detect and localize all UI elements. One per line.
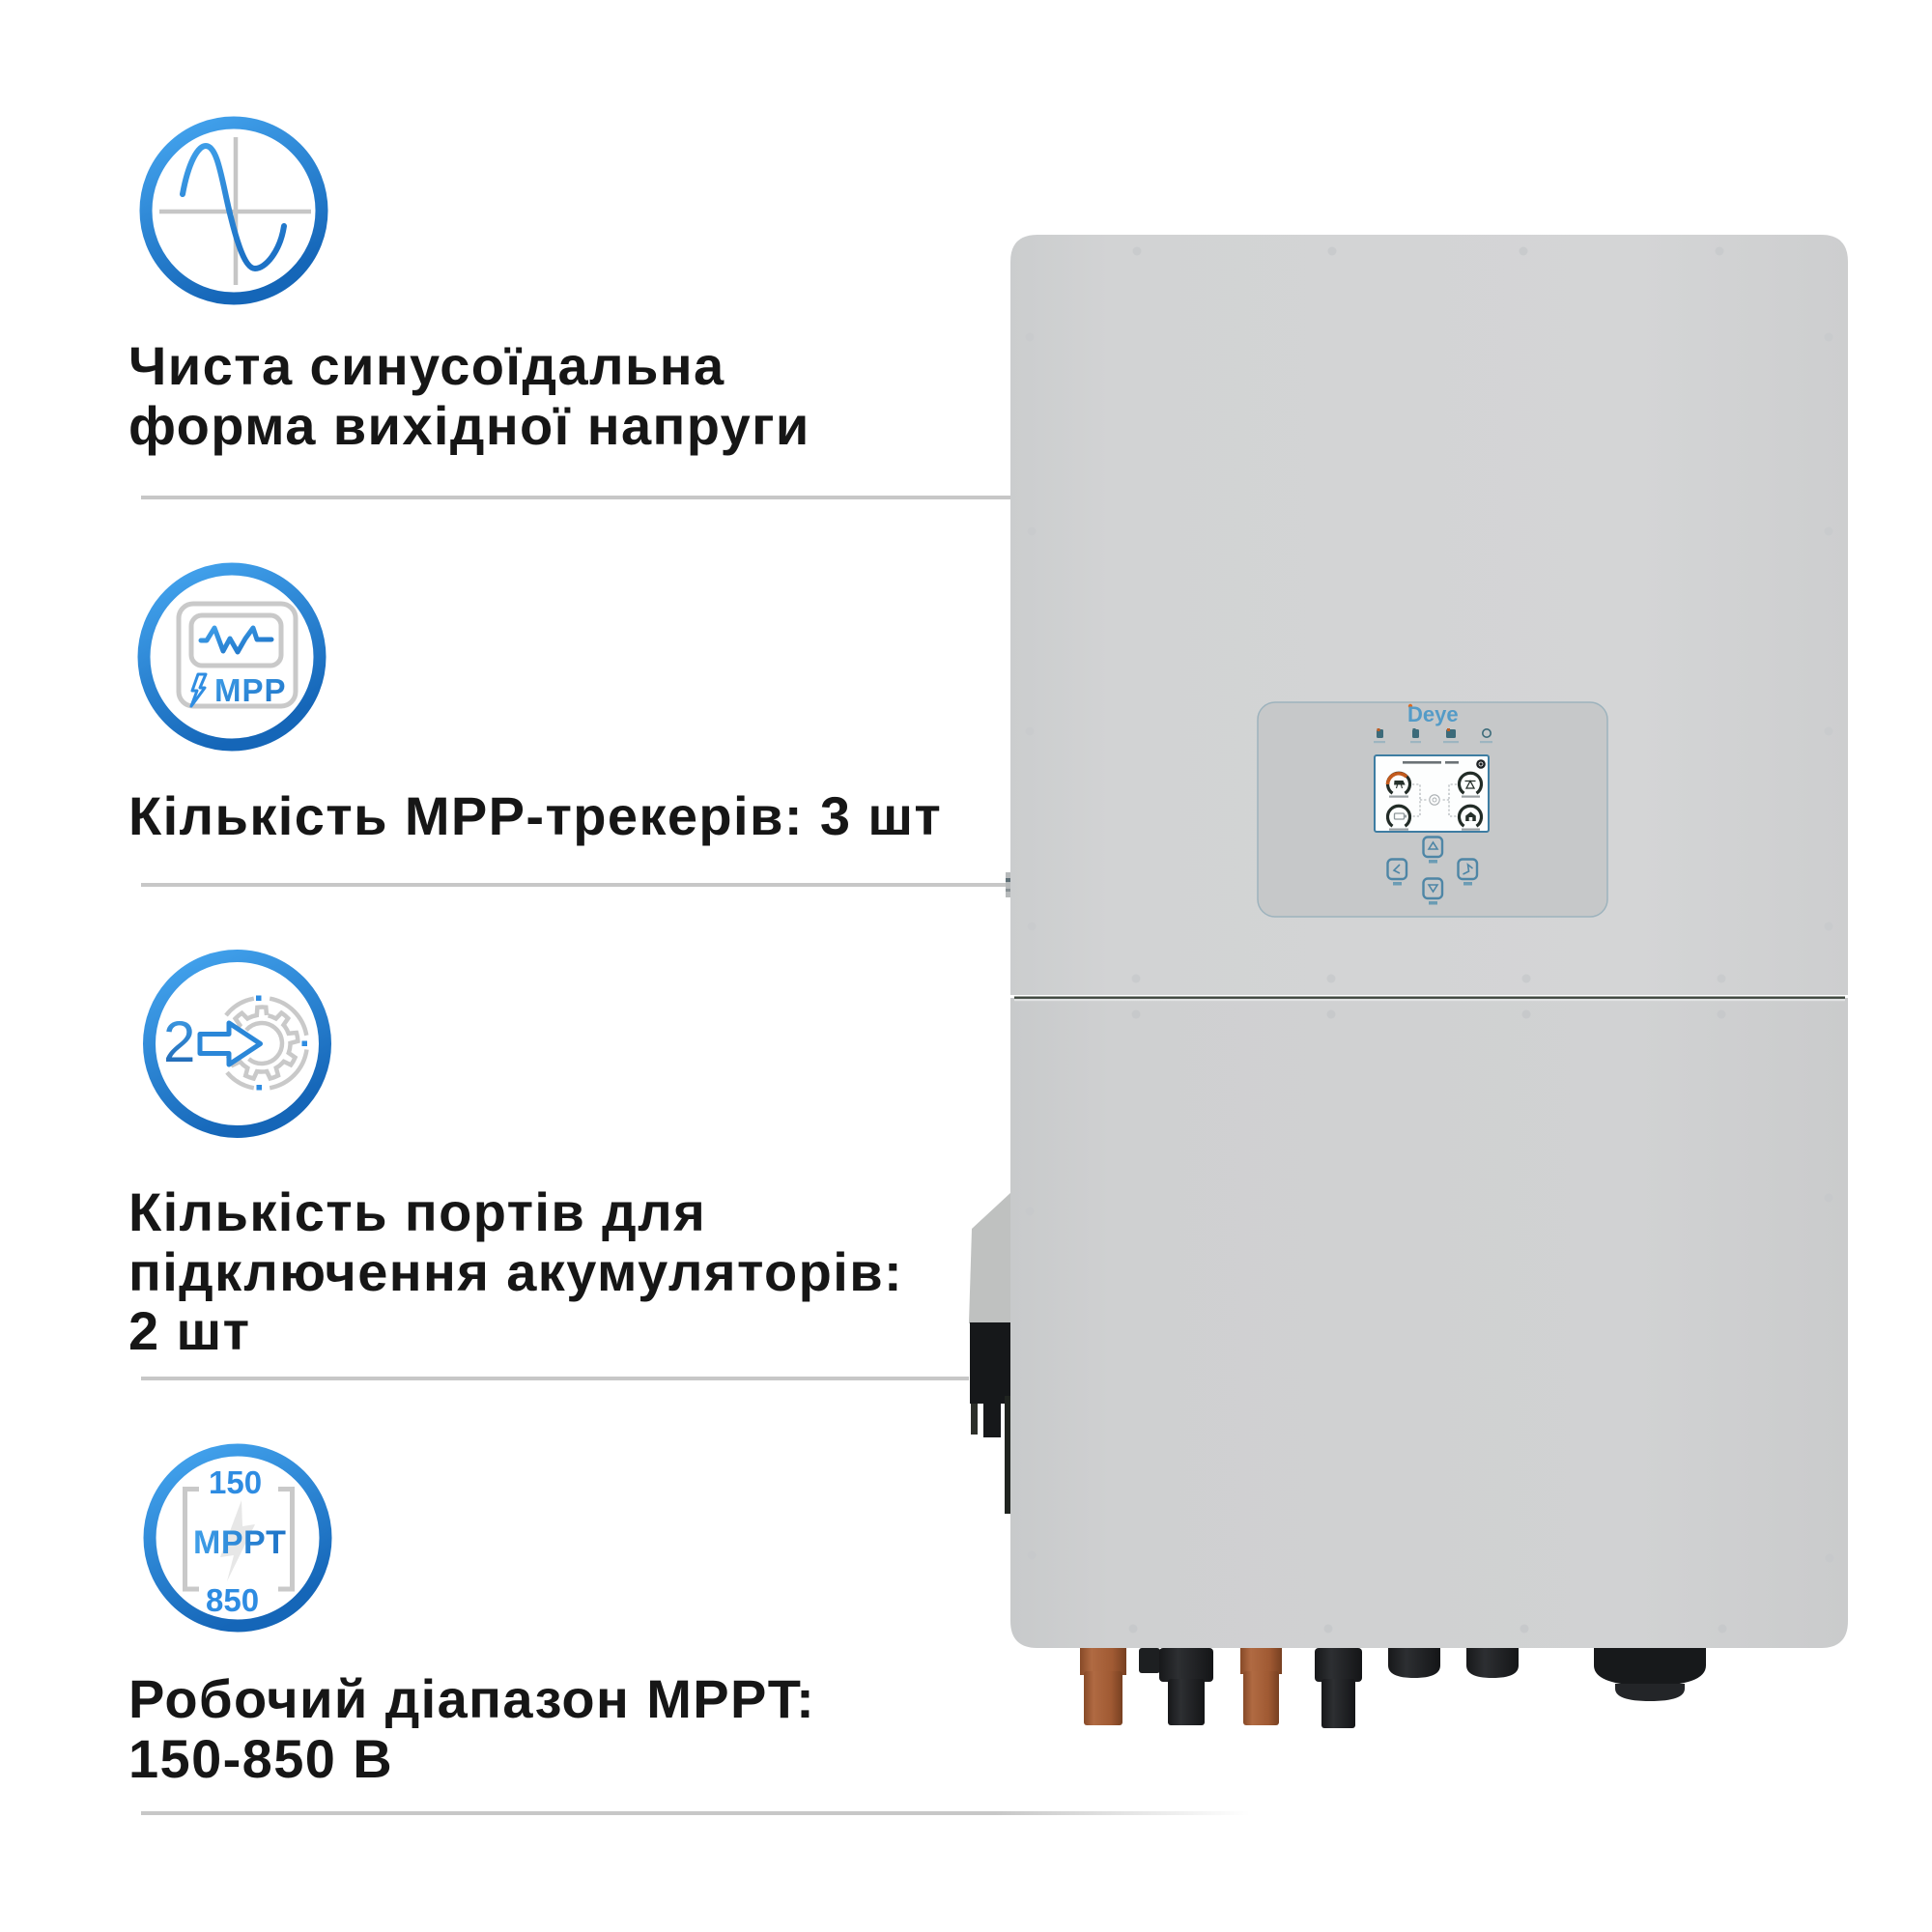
svg-text:150: 150 [209, 1464, 262, 1500]
svg-text:MPPT: MPPT [193, 1524, 286, 1561]
svg-text:Deye: Deye [1407, 702, 1459, 726]
svg-text:MPP: MPP [214, 672, 287, 708]
svg-text:2: 2 [163, 1009, 195, 1074]
svg-text:850: 850 [206, 1582, 259, 1618]
